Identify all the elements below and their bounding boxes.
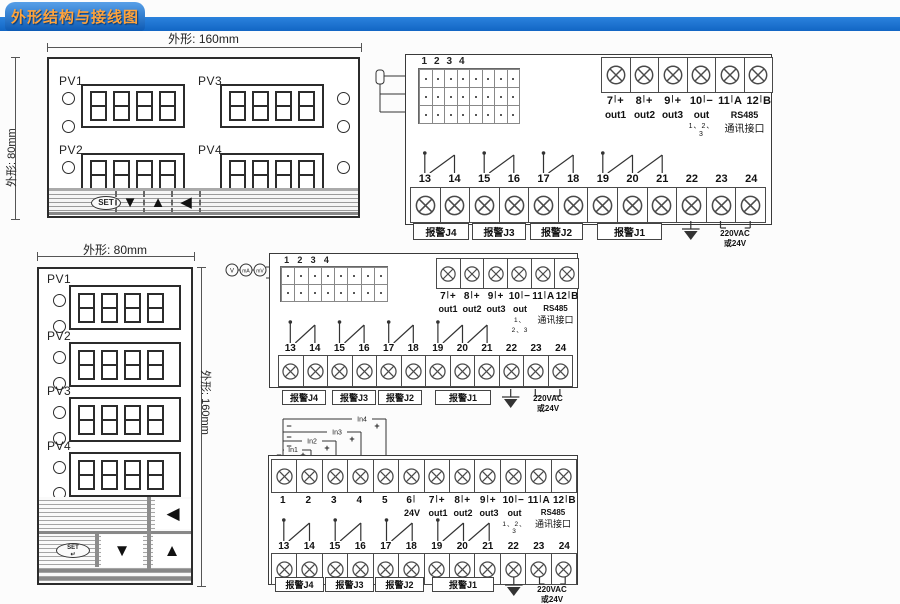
terminal-number: 13 [278, 343, 303, 354]
connector-pin [419, 69, 433, 88]
screw-terminal [376, 355, 402, 387]
led-indicator [53, 461, 66, 474]
dimension-label-height: 外形: 160mm [198, 370, 214, 435]
svg-text:V: V [230, 269, 234, 275]
pv3-display-group: PV3 [198, 76, 348, 140]
connector-pin [281, 267, 295, 285]
up-button: ▲ [153, 535, 191, 567]
connector-pin [444, 105, 458, 124]
connector-pin [361, 284, 375, 302]
connector-pin [294, 284, 308, 302]
terminal-number: 20 [618, 173, 648, 185]
svg-text:−: − [286, 421, 291, 431]
wiring-diagram-80mm: 1234 7|+8|+9|+10|−11|A12|B out1 out2 out… [269, 253, 578, 388]
connector-pin [507, 105, 521, 124]
connector-pin [321, 284, 335, 302]
left-button: ◀ [173, 191, 199, 214]
connector-pin [347, 284, 361, 302]
led-indicator [337, 92, 350, 105]
out3-label: out3 [484, 304, 508, 314]
screw-terminal [548, 355, 574, 387]
terminal-number: 8|+ [630, 95, 659, 107]
dimension-line [37, 252, 195, 261]
left-button: ◀ [155, 499, 191, 529]
connector-pin [281, 284, 295, 302]
screw-terminal [558, 187, 589, 223]
connector-pin [444, 87, 458, 106]
terminal-number: 15 [322, 541, 348, 552]
digit [147, 405, 164, 435]
pv-label: PV4 [198, 143, 222, 157]
screw-terminal [551, 459, 577, 493]
digit [101, 350, 118, 380]
connector-pin [347, 267, 361, 285]
connector-pin [482, 105, 496, 124]
screw-terminal [352, 355, 378, 387]
terminal-number: 13 [271, 541, 297, 552]
digit [101, 405, 118, 435]
screw-terminal [271, 459, 297, 493]
input-column-number: 4 [320, 255, 333, 265]
digit [90, 91, 107, 121]
terminal-number: 17 [529, 173, 559, 185]
top-terminal-strip [271, 459, 577, 493]
screw-terminal [440, 187, 471, 223]
wiring-diagram-vertical-model: 123456|7|+8|+9|+10|−11|A12|B 24V out1 ou… [268, 455, 578, 585]
terminal-number: 11|A [526, 495, 552, 506]
out3-label: out3 [658, 110, 687, 121]
digit-display [69, 285, 181, 330]
power-label: 或24V [705, 238, 765, 249]
svg-text:mV: mV [256, 269, 264, 275]
out1-label: out1 [436, 304, 460, 314]
screw-terminal [460, 258, 485, 289]
terminal-number: 23 [707, 173, 737, 185]
digit [147, 460, 164, 490]
down-button: ▼ [101, 535, 143, 567]
terminal-number: 19 [424, 541, 450, 552]
terminal-number: 9|+ [484, 291, 508, 302]
pv4-display-group: PV4 [39, 441, 179, 497]
pv-label: PV4 [47, 439, 71, 453]
connector-pin [457, 87, 471, 106]
screw-terminal [401, 355, 427, 387]
terminal-number: 15 [327, 343, 352, 354]
terminal-number: 15 [469, 173, 499, 185]
input-pin-grid [418, 68, 520, 124]
terminal-number: 21 [475, 343, 500, 354]
screw-terminal [715, 57, 745, 93]
dimension-line [47, 43, 362, 52]
terminal-number: 2 [297, 495, 323, 506]
input-channel-brackets: In4 In3 In2 In1 + + + + − − − − [266, 412, 390, 458]
terminal-number: 8|+ [450, 495, 476, 506]
terminal-number: 18 [558, 173, 588, 185]
screw-terminal [531, 258, 556, 289]
relay-contact-symbols [269, 516, 579, 541]
screw-terminal [347, 459, 373, 493]
pv-label: PV2 [47, 329, 71, 343]
bezel-band [39, 569, 191, 572]
screw-terminal [735, 187, 766, 223]
digit [78, 293, 95, 323]
svg-text:In4: In4 [357, 417, 367, 424]
screw-terminal [327, 355, 353, 387]
terminal-number: 18 [399, 541, 425, 552]
screw-terminal [617, 187, 648, 223]
terminal-number: 6| [399, 495, 425, 506]
digit [101, 460, 118, 490]
power-label: 220VAC [522, 585, 582, 594]
screw-terminal [322, 459, 348, 493]
key-area: ◀ SET↵ ▼ ▲ [39, 497, 191, 583]
digit [298, 160, 315, 190]
screw-terminal [398, 459, 424, 493]
screw-terminal [647, 187, 678, 223]
terminal-number: 22 [677, 173, 707, 185]
pv-label: PV1 [59, 74, 83, 88]
terminal-number: 7|+ [601, 95, 630, 107]
terminal-number: 11|A [531, 291, 555, 302]
svg-text:In3: In3 [332, 430, 342, 437]
screw-terminal [278, 355, 304, 387]
svg-text:+: + [374, 421, 379, 431]
input-column-number: 1 [418, 56, 431, 67]
digit [113, 160, 130, 190]
digit [136, 91, 153, 121]
digit-display [69, 342, 181, 387]
terminal-number: 10|− [507, 291, 531, 302]
screw-terminal [474, 355, 500, 387]
screw-terminal [587, 187, 618, 223]
digit [113, 91, 130, 121]
terminal-number: 9|+ [658, 95, 687, 107]
screw-terminal [450, 355, 476, 387]
top-terminal-numbers: 123456|7|+8|+9|+10|−11|A12|B [271, 495, 577, 506]
led-indicator [53, 406, 66, 419]
digit [147, 293, 164, 323]
connector-pin [419, 87, 433, 106]
digit [78, 350, 95, 380]
connector-pin [457, 69, 471, 88]
screw-terminal [410, 187, 441, 223]
terminal-number: 20 [450, 343, 475, 354]
terminal-number: 14 [303, 343, 328, 354]
connector-pin [361, 267, 375, 285]
input-column-numbers: 1234 [418, 56, 468, 67]
relay-contact-symbols [406, 149, 773, 173]
down-button: ▼ [117, 191, 143, 214]
input-column-numbers: 1234 [280, 255, 333, 265]
digit [78, 460, 95, 490]
digit [298, 91, 315, 121]
input-column-number: 2 [293, 255, 306, 265]
pv3-display-group: PV3 [39, 386, 179, 442]
svg-text:mA: mA [242, 269, 250, 275]
connector-pin [374, 267, 388, 285]
screw-terminal [630, 57, 660, 93]
connector-pin [444, 69, 458, 88]
terminal-number: 4 [348, 495, 374, 506]
output-terminal-strip [601, 57, 773, 93]
digit [252, 91, 269, 121]
digit [229, 160, 246, 190]
screw-terminal [373, 459, 399, 493]
dimension-label-height: 外形: 80mm [3, 128, 19, 187]
screw-terminal [303, 355, 329, 387]
digit [275, 91, 292, 121]
connector-pin [308, 267, 322, 285]
connector-pin [494, 87, 508, 106]
pv2-display-group: PV2 [39, 331, 179, 387]
svg-text:+: + [349, 434, 354, 444]
power-label: 220VAC [518, 394, 578, 403]
screw-terminal [436, 258, 461, 289]
pv1-display-group: PV1 [39, 274, 179, 330]
connector-pin [419, 105, 433, 124]
screw-terminal [499, 187, 530, 223]
connector-pin [294, 267, 308, 285]
connector-pin [432, 105, 446, 124]
screw-terminal [528, 187, 559, 223]
bottom-terminal-numbers: 131415161718192021222324 [410, 173, 766, 185]
input-column-number: 3 [443, 56, 456, 67]
digit [147, 350, 164, 380]
bezel-band [39, 531, 191, 534]
panel-meter-horizontal: PV1 PV3 PV2 PV4 SET [47, 57, 360, 218]
pv1-display-group: PV1 [59, 76, 209, 140]
terminal-number: 10|− [501, 495, 527, 506]
terminal-number: 16 [499, 173, 529, 185]
svg-text:In2: In2 [307, 439, 317, 446]
connector-pin [482, 69, 496, 88]
screw-terminal [499, 355, 525, 387]
digit [136, 160, 153, 190]
pv-label: PV2 [59, 143, 83, 157]
digit [124, 460, 141, 490]
terminal-number: 9|+ [475, 495, 501, 506]
key-separator [147, 497, 151, 569]
digit [78, 405, 95, 435]
connector-pin [469, 105, 483, 124]
connector-pin [482, 87, 496, 106]
out2-label: out2 [630, 110, 659, 121]
bottom-terminal-numbers: 131415161718192021222324 [271, 541, 577, 552]
terminal-number: 24 [548, 343, 573, 354]
connector-pin [494, 105, 508, 124]
digit [159, 91, 176, 121]
screw-terminal [425, 355, 451, 387]
terminal-number: 12|B [555, 291, 579, 302]
digit [90, 160, 107, 190]
output-terminal-numbers: 7|+8|+9|+10|−11|A12|B [601, 95, 773, 107]
out-group-label: out1、2、3 [687, 110, 716, 138]
key-separator [199, 191, 201, 214]
set-button: SET↵ [56, 543, 90, 558]
screw-terminal [424, 459, 450, 493]
connector-pin [321, 267, 335, 285]
terminal-number: 16 [348, 541, 374, 552]
terminal-number: 23 [524, 343, 549, 354]
led-indicator [62, 120, 75, 133]
connector-pin [334, 284, 348, 302]
digit [101, 293, 118, 323]
key-strip: SET ▼ ▲ ◀ [49, 188, 358, 214]
terminal-number: 19 [425, 343, 450, 354]
terminal-number: 22 [501, 541, 527, 552]
terminal-number: 23 [526, 541, 552, 552]
bottom-terminal-strip [278, 355, 573, 387]
digit [124, 350, 141, 380]
screw-terminal [601, 57, 631, 93]
screw-terminal [554, 258, 579, 289]
digit-display [69, 452, 181, 497]
terminal-number: 14 [297, 541, 323, 552]
relay-contact-symbols [270, 318, 579, 343]
bezel-band [39, 577, 191, 580]
power-label: 或24V [518, 403, 578, 414]
digit [124, 405, 141, 435]
pv-label: PV3 [198, 74, 222, 88]
digit-display [220, 84, 324, 128]
terminal-number: 24 [736, 173, 766, 185]
led-indicator [62, 161, 75, 174]
screw-terminal [706, 187, 737, 223]
terminal-number: 12|B [552, 495, 578, 506]
pv-label: PV1 [47, 272, 71, 286]
screw-terminal [744, 57, 774, 93]
wiring-diagram-160mm: 1234 7|+8|+9|+10|−11|A12|B out1 out2 out… [405, 54, 772, 225]
page: 外形结构与接线图 外形: 160mm 外形: 80mm PV1 PV3 PV2 … [0, 0, 900, 604]
terminal-number: 11|A [716, 95, 745, 107]
input-column-number: 2 [431, 56, 444, 67]
input-column-number: 4 [456, 56, 469, 67]
connector-pin [507, 69, 521, 88]
out2-label: out2 [460, 304, 484, 314]
screw-terminal [523, 355, 549, 387]
screw-terminal [483, 258, 508, 289]
led-indicator [53, 351, 66, 364]
terminal-number: 14 [440, 173, 470, 185]
screw-terminal [500, 459, 526, 493]
connector-pin [469, 87, 483, 106]
digit [124, 293, 141, 323]
terminal-number: 13 [410, 173, 440, 185]
connector-pin [457, 105, 471, 124]
connector-pin [308, 284, 322, 302]
terminal-number: 20 [450, 541, 476, 552]
screw-terminal [469, 187, 500, 223]
terminal-number: 17 [373, 541, 399, 552]
digit [252, 160, 269, 190]
svg-text:+: + [324, 443, 329, 453]
screw-terminal [296, 459, 322, 493]
digit [159, 160, 176, 190]
power-label: 220VAC [705, 229, 765, 238]
terminal-number: 19 [588, 173, 618, 185]
page-title: 外形结构与接线图 [11, 6, 139, 27]
terminal-number: 5 [373, 495, 399, 506]
screw-terminal [687, 57, 717, 93]
panel-meter-vertical: PV1 PV2 PV3 PV4 ◀ SET↵ [37, 267, 193, 585]
output-terminal-strip [436, 258, 579, 289]
svg-text:−: − [286, 441, 291, 451]
power-label: 或24V [522, 594, 582, 604]
terminal-number: 18 [401, 343, 426, 354]
input-pin-grid [280, 266, 388, 302]
bottom-terminal-numbers: 131415161718192021222324 [278, 343, 573, 354]
digit [229, 91, 246, 121]
input-column-number: 1 [280, 255, 293, 265]
bezel-band [49, 212, 358, 215]
key-separator [95, 534, 99, 567]
terminal-number: 1 [271, 495, 297, 506]
terminal-number: 7|+ [436, 291, 460, 302]
connector-pin [432, 87, 446, 106]
terminal-number: 21 [647, 173, 677, 185]
connector-pin [374, 284, 388, 302]
screw-terminal [525, 459, 551, 493]
header-tab: 外形结构与接线图 [5, 2, 145, 31]
led-indicator [337, 161, 350, 174]
connector-pin [494, 69, 508, 88]
screw-terminal [507, 258, 532, 289]
terminal-number: 24 [552, 541, 578, 552]
terminal-number: 10|− [687, 95, 716, 107]
screw-terminal [676, 187, 707, 223]
connector-pin [469, 69, 483, 88]
terminal-number: 7|+ [424, 495, 450, 506]
terminal-number: 17 [376, 343, 401, 354]
terminal-number: 8|+ [460, 291, 484, 302]
input-column-number: 3 [307, 255, 320, 265]
led-indicator [62, 92, 75, 105]
rs485-label: RS485通讯接口 [716, 110, 773, 135]
digit-display [81, 84, 185, 128]
led-indicator [53, 294, 66, 307]
terminal-number: 12|B [744, 95, 773, 107]
output-terminal-numbers: 7|+8|+9|+10|−11|A12|B [436, 291, 579, 302]
led-indicator [337, 120, 350, 133]
terminal-number: 3 [322, 495, 348, 506]
connector-pin [432, 69, 446, 88]
out1-label: out1 [601, 110, 630, 121]
digit-display [69, 397, 181, 442]
screw-terminal [449, 459, 475, 493]
screw-terminal [658, 57, 688, 93]
bottom-terminal-strip [410, 187, 766, 223]
terminal-number: 22 [499, 343, 524, 354]
connector-pin [334, 267, 348, 285]
pv-label: PV3 [47, 384, 71, 398]
up-button: ▲ [145, 191, 171, 214]
connector-pin [507, 87, 521, 106]
screw-terminal [474, 459, 500, 493]
digit [275, 160, 292, 190]
terminal-number: 16 [352, 343, 377, 354]
terminal-number: 21 [475, 541, 501, 552]
